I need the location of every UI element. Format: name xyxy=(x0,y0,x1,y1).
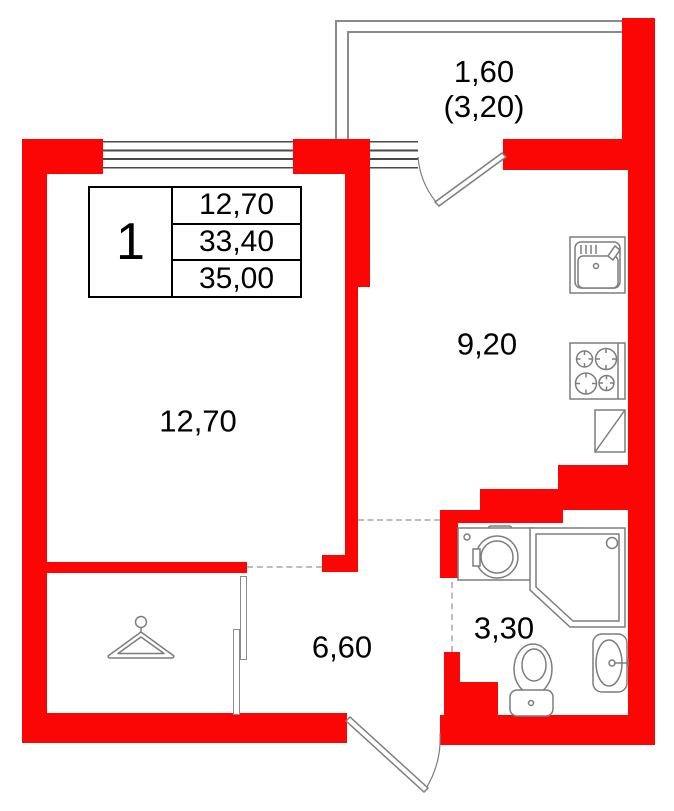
wall-bath-sw-step xyxy=(444,682,498,717)
kitchen-label: 9,20 xyxy=(457,327,517,362)
shower-icon xyxy=(528,526,630,630)
wall-divider-foot xyxy=(322,555,358,572)
unit-number: 1 xyxy=(90,188,173,296)
wall-bath-step-b xyxy=(480,489,628,510)
apartment-info-table: 1 12,70 33,40 35,00 xyxy=(88,186,302,298)
area-list: 12,70 33,40 35,00 xyxy=(173,188,300,296)
hallway-label: 6,60 xyxy=(312,630,372,665)
area-apartment: 33,40 xyxy=(173,225,300,262)
wall-divider-thin xyxy=(345,287,358,562)
wall-top-pier xyxy=(293,139,370,174)
fridge-icon xyxy=(593,408,629,456)
wall-bottom-left xyxy=(22,713,347,743)
dashed-room-hall-line xyxy=(247,566,322,568)
wall-bath-step-a xyxy=(558,465,628,489)
floor-plan: 1 12,70 33,40 35,00 1,60 (3,20) 9,20 12,… xyxy=(0,0,674,811)
wall-top-left-block xyxy=(22,139,103,174)
kitchen-window xyxy=(370,141,418,169)
area-total: 35,00 xyxy=(173,261,300,296)
washing-machine-icon xyxy=(456,524,536,584)
stove-icon xyxy=(568,341,628,403)
bathroom-sink-icon xyxy=(590,630,635,696)
balcony-area-value: 1,60 xyxy=(444,54,525,89)
wall-closet-top xyxy=(43,562,247,573)
closet-sliding-door-panel-inner xyxy=(233,629,240,715)
wall-kitchen-north xyxy=(503,139,622,170)
living-room-window xyxy=(103,141,293,169)
entrance-door-icon xyxy=(340,708,450,800)
dashed-bathroom-door-line xyxy=(451,582,453,652)
toilet-icon xyxy=(505,640,560,720)
wall-left xyxy=(22,139,47,742)
balcony-label: 1,60 (3,20) xyxy=(444,54,525,124)
living-room-label: 12,70 xyxy=(159,404,237,439)
balcony-door-icon xyxy=(415,135,510,213)
dashed-kitchen-hall-line xyxy=(358,519,440,521)
bathroom-label: 3,30 xyxy=(474,611,534,646)
wall-balcony-right xyxy=(622,18,655,170)
wall-divider-thick xyxy=(345,174,370,287)
area-living: 12,70 xyxy=(173,188,300,225)
kitchen-sink-icon xyxy=(568,235,628,297)
hanger-icon xyxy=(100,610,185,665)
wall-bath-step-c xyxy=(440,510,563,523)
balcony-area-total: (3,20) xyxy=(444,89,525,124)
closet-sliding-door-panel-outer xyxy=(240,576,247,660)
